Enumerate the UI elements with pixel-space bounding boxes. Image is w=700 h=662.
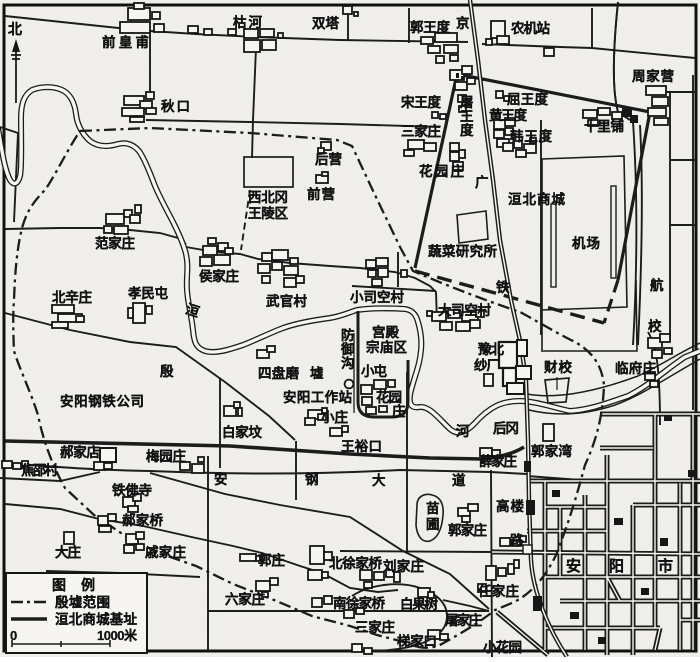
svg-text:北: 北 [8, 21, 22, 37]
svg-text:临府庄: 临府庄 [615, 360, 657, 376]
svg-text:三家庄: 三家庄 [355, 619, 396, 635]
svg-text:梯家口: 梯家口 [397, 633, 437, 649]
svg-text:纱厂: 纱厂 [474, 358, 500, 373]
svg-text:0: 0 [10, 628, 17, 643]
svg-text:南徐家桥: 南徐家桥 [333, 595, 386, 611]
svg-text:任家庄: 任家庄 [477, 583, 520, 599]
svg-text:武官村: 武官村 [266, 293, 308, 309]
svg-text:1000米: 1000米 [97, 628, 138, 643]
svg-text:宋王度: 宋王度 [401, 94, 442, 110]
svg-text:殷: 殷 [160, 363, 174, 379]
svg-text:大: 大 [372, 472, 386, 488]
svg-text:宫殿: 宫殿 [372, 324, 400, 340]
svg-text:郝家桥: 郝家桥 [122, 512, 164, 528]
svg-text:圃: 圃 [426, 517, 440, 532]
svg-text:后冈: 后冈 [493, 420, 519, 436]
svg-text:殷墟范围: 殷墟范围 [55, 594, 110, 610]
svg-text:市: 市 [658, 557, 673, 575]
svg-text:洹北商城: 洹北商城 [508, 191, 566, 207]
svg-text:花园: 花园 [376, 389, 402, 405]
svg-text:焦邵村: 焦邵村 [20, 462, 59, 478]
svg-text:白果树: 白果树 [400, 596, 439, 612]
svg-text:薛家庄: 薛家庄 [479, 453, 518, 469]
svg-text:小花园: 小花园 [483, 639, 522, 655]
svg-text:洹北商城基址: 洹北商城基址 [55, 611, 138, 627]
svg-text:韩王度: 韩王度 [510, 128, 553, 144]
svg-text:阳: 阳 [609, 558, 624, 575]
svg-text:梅园庄: 梅园庄 [146, 448, 187, 464]
svg-text:黄王度: 黄王度 [489, 107, 528, 123]
svg-text:路: 路 [510, 532, 524, 548]
svg-text:度: 度 [460, 122, 474, 138]
svg-text:双塔: 双塔 [312, 15, 340, 31]
svg-text:铁: 铁 [496, 279, 510, 295]
svg-text:大庄: 大庄 [55, 544, 82, 560]
svg-text:小司空村: 小司空村 [350, 289, 405, 305]
svg-text:前营: 前营 [307, 186, 335, 202]
svg-text:宗庙区: 宗庙区 [366, 339, 408, 355]
svg-text:苗: 苗 [426, 500, 440, 516]
svg-text:西北冈: 西北冈 [248, 190, 288, 205]
svg-text:安阳钢铁公司: 安阳钢铁公司 [60, 393, 144, 409]
svg-text:侯家庄: 侯家庄 [199, 268, 240, 284]
svg-text:范家庄: 范家庄 [95, 235, 136, 251]
svg-text:十里铺: 十里铺 [584, 118, 625, 134]
svg-text:郭庄: 郭庄 [258, 552, 286, 568]
svg-text:郭王度: 郭王度 [410, 19, 451, 35]
svg-text:航: 航 [650, 277, 664, 293]
svg-text:白家坟: 白家坟 [222, 424, 263, 440]
svg-text:安: 安 [566, 557, 581, 575]
svg-text:豫北: 豫北 [478, 341, 505, 357]
svg-text:防: 防 [341, 327, 355, 343]
svg-text:三家庄: 三家庄 [401, 123, 442, 139]
svg-text:孝民屯: 孝民屯 [128, 285, 169, 301]
svg-text:道: 道 [452, 472, 466, 488]
svg-text:六家庄: 六家庄 [225, 591, 266, 607]
svg-text:前皇甫: 前皇甫 [102, 34, 149, 50]
svg-text:财校: 财校 [543, 359, 573, 375]
svg-text:广: 广 [475, 174, 489, 190]
svg-text:图 例: 图 例 [52, 577, 95, 593]
svg-text:大司空村: 大司空村 [438, 302, 492, 318]
svg-text:安: 安 [214, 471, 228, 487]
svg-text:王裕口: 王裕口 [341, 438, 382, 454]
svg-text:沟: 沟 [341, 355, 355, 371]
svg-text:安阳工作站: 安阳工作站 [283, 389, 353, 405]
svg-text:四盘磨: 四盘磨 [258, 365, 300, 381]
svg-text:墟: 墟 [310, 365, 324, 381]
svg-text:铁佛寺: 铁佛寺 [112, 482, 153, 498]
svg-text:高楼: 高楼 [496, 498, 525, 514]
svg-text:戚家庄: 戚家庄 [145, 544, 187, 560]
svg-text:郭家湾: 郭家湾 [531, 443, 573, 459]
svg-text:御: 御 [340, 341, 355, 357]
svg-text:蔬菜研究所: 蔬菜研究所 [428, 243, 498, 259]
svg-text:王: 王 [460, 109, 474, 124]
svg-text:郭家庄: 郭家庄 [448, 522, 488, 538]
svg-text:北徐家桥: 北徐家桥 [329, 555, 383, 571]
svg-text:花园庄: 花园庄 [419, 163, 465, 179]
svg-text:后营: 后营 [315, 151, 342, 167]
svg-text:屠: 屠 [460, 95, 474, 110]
svg-text:庄: 庄 [392, 403, 406, 419]
svg-text:王陵区: 王陵区 [248, 205, 289, 221]
svg-text:郝家店: 郝家店 [60, 444, 101, 460]
svg-text:机场: 机场 [572, 235, 600, 251]
svg-text:屈王度: 屈王度 [507, 91, 549, 107]
svg-text:屠家庄: 屠家庄 [445, 612, 483, 628]
svg-text:校: 校 [648, 318, 662, 334]
svg-text:钢: 钢 [305, 471, 319, 487]
svg-text:农机站: 农机站 [510, 20, 551, 36]
svg-text:刘家庄: 刘家庄 [383, 558, 425, 574]
svg-text:京: 京 [456, 15, 470, 31]
svg-text:河: 河 [456, 423, 470, 439]
svg-text:小庄: 小庄 [321, 409, 349, 425]
svg-text:小屯: 小屯 [361, 363, 388, 379]
svg-text:枯河: 枯河 [233, 14, 263, 30]
svg-text:周家营: 周家营 [632, 68, 674, 84]
svg-text:北辛庄: 北辛庄 [52, 289, 93, 305]
